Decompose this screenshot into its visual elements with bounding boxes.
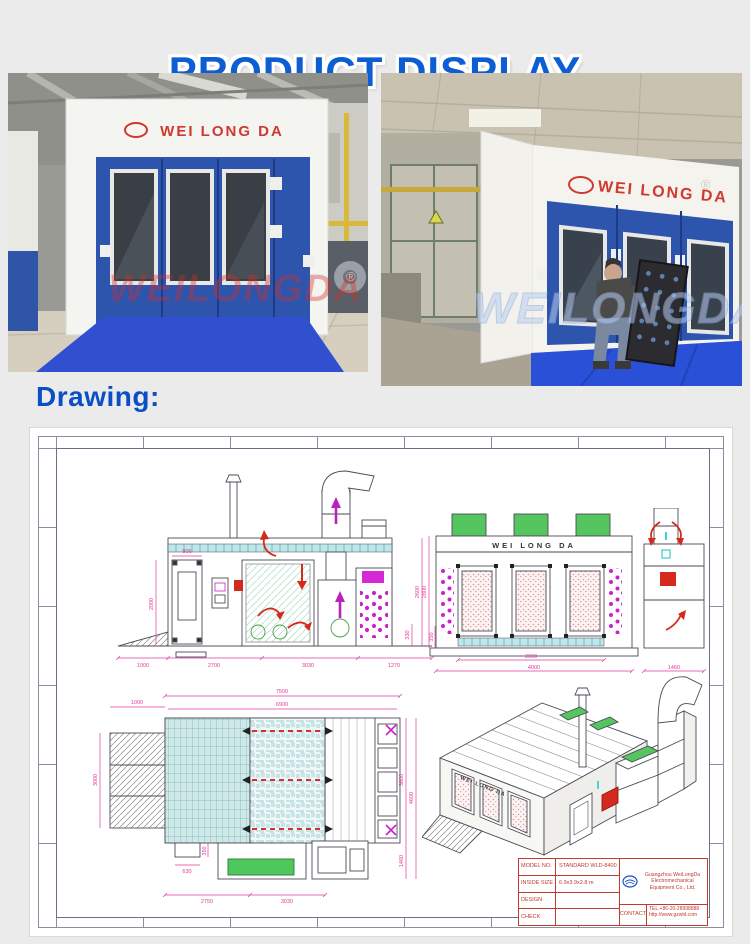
svg-text:1000: 1000	[137, 663, 149, 669]
svg-text:1270: 1270	[388, 663, 400, 669]
check-value	[556, 909, 619, 925]
iso-geometry	[422, 677, 702, 855]
company-name-line1: Guangzhou WeiLongDa Electromechanical	[640, 872, 705, 885]
photo-right-scene: WEI LONG DA	[381, 73, 742, 386]
watermark-text: WEILONGDA	[109, 268, 363, 310]
svg-text:3000: 3000	[93, 774, 99, 786]
svg-text:630: 630	[182, 869, 191, 875]
contact-tel: TEL.+86-20-28998888	[649, 906, 705, 912]
drawing-section-title: Drawing:	[36, 381, 160, 413]
left-background	[381, 133, 483, 323]
contact-label: CONTACT	[620, 905, 647, 925]
svg-text:7500: 7500	[276, 689, 288, 695]
left-wall	[8, 131, 38, 331]
watermark-text: WEILONGDA	[473, 284, 742, 333]
company-logo-icon	[622, 875, 638, 888]
svg-text:1000: 1000	[131, 700, 143, 706]
check-label: CHECK	[519, 909, 556, 925]
design-label: DESIGN	[519, 893, 556, 909]
contact-web[interactable]: http://www.gzwld.com	[649, 912, 705, 918]
svg-text:2800: 2800	[422, 586, 428, 598]
side-elevation-view: 1000 2700 3030 1270 806 2000 2600 330	[110, 468, 440, 673]
model-no-value: STANDARD WLD-8400	[556, 859, 619, 875]
svg-text:330: 330	[405, 630, 411, 639]
svg-text:1460: 1460	[399, 855, 405, 867]
drawing-brand-text: WEI LONG DA	[492, 541, 576, 550]
svg-text:4600: 4600	[409, 792, 415, 804]
plan-geometry	[110, 718, 400, 879]
side-view-geometry	[118, 471, 432, 657]
svg-text:806: 806	[182, 549, 191, 555]
front-view-geometry	[430, 508, 704, 656]
company-cell: Guangzhou WeiLongDa Electromechanical Eq…	[620, 859, 707, 905]
plan-view: 1000 7500 6900 3000 3600 4600 1460 2750	[90, 683, 420, 913]
svg-text:3600: 3600	[399, 774, 405, 786]
registered-mark: ®	[701, 177, 711, 192]
svg-text:3000: 3000	[525, 654, 537, 660]
svg-text:350: 350	[202, 846, 208, 855]
title-block-table: MODEL NO. STANDARD WLD-8400 INSIDE SIZE …	[519, 859, 620, 925]
company-name-line2: Equipment Co., Ltd.	[640, 885, 705, 892]
inside-size-label: INSIDE SIZE	[519, 876, 556, 892]
booth-brand-text: WEI LONG DA	[160, 123, 284, 140]
svg-text:3030: 3030	[302, 663, 314, 669]
product-photo-front[interactable]: WEI LONG DA	[8, 73, 368, 372]
photo-left-scene: WEI LONG DA	[8, 73, 368, 372]
technical-drawing-sheet: 1000 2700 3030 1270 806 2000 2600 330	[30, 428, 732, 936]
svg-text:3030: 3030	[281, 899, 293, 905]
ceiling-light	[469, 109, 541, 127]
product-photo-installation[interactable]: WEI LONG DA	[381, 73, 742, 386]
svg-text:2700: 2700	[208, 663, 220, 669]
svg-text:6900: 6900	[276, 702, 288, 708]
inside-size-value: 6.9x3.9x2.8 m	[556, 876, 619, 892]
svg-text:350: 350	[429, 632, 435, 641]
svg-text:2750: 2750	[201, 899, 213, 905]
registered-mark: ®	[346, 269, 356, 284]
svg-text:2000: 2000	[149, 598, 155, 610]
design-value	[556, 893, 619, 909]
front-elevation-view: WEI LONG DA 3000 4000 1460	[422, 508, 712, 688]
svg-text:2600: 2600	[415, 586, 421, 598]
isometric-view: WEI LONG DA	[422, 663, 722, 858]
title-block: MODEL NO. STANDARD WLD-8400 INSIDE SIZE …	[518, 858, 708, 926]
model-no-label: MODEL NO.	[519, 859, 556, 875]
